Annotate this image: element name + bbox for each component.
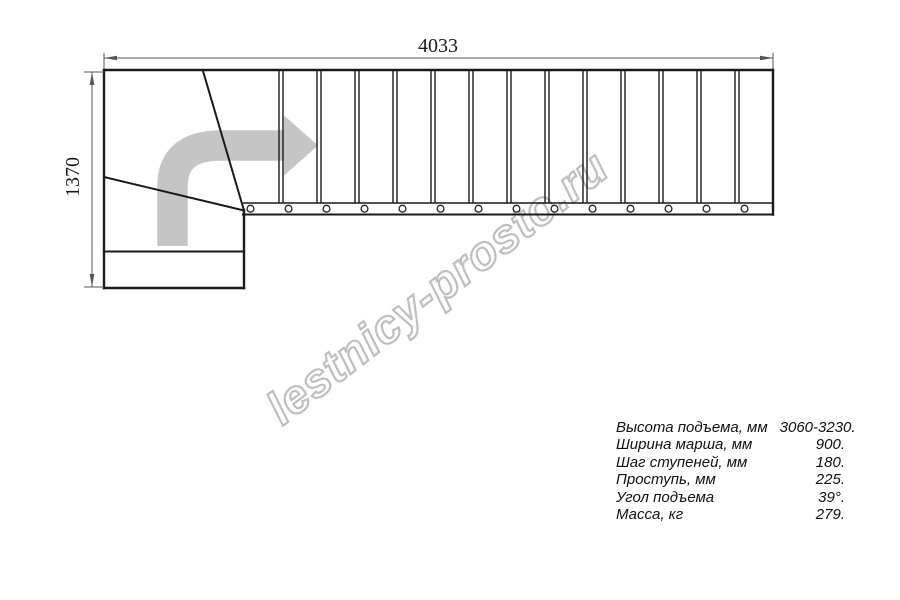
height-dim-arrow-bottom <box>90 274 95 287</box>
direction-arrow-head <box>284 116 318 176</box>
baluster-circle <box>589 205 596 212</box>
spec-label: Шаг ступеней, мм <box>616 454 747 471</box>
baluster-circle <box>513 205 520 212</box>
baluster-circle <box>285 205 292 212</box>
baluster-circle <box>361 205 368 212</box>
spec-label: Ширина марша, мм <box>616 436 752 453</box>
width-dim-arrow-right <box>760 56 773 61</box>
baluster-circle <box>665 205 672 212</box>
watermark-text: lestnicy-prosto.ru <box>256 140 617 435</box>
baluster-circle <box>703 205 710 212</box>
spec-label: Проступь, мм <box>616 471 716 488</box>
baluster-circle <box>475 205 482 212</box>
spec-label: Масса, кг <box>616 506 683 523</box>
height-dim-arrow-top <box>90 72 95 85</box>
direction-arrow-shaft <box>173 146 285 247</box>
baluster-circle <box>399 205 406 212</box>
direction-arrow <box>173 116 319 247</box>
dimension-width: 4033 <box>104 35 773 69</box>
width-dim-arrow-left <box>104 56 117 61</box>
spec-row: Ширина марша, мм 900. <box>616 436 845 453</box>
baluster-circle <box>437 205 444 212</box>
spec-value: 39°. <box>806 489 845 506</box>
spec-row: Проступь, мм 225. <box>616 471 845 488</box>
spec-value: 279. <box>804 506 845 523</box>
spec-label: Угол подъема <box>616 489 714 506</box>
height-dimension-label: 1370 <box>62 157 84 197</box>
width-dimension-label: 4033 <box>418 35 458 57</box>
baluster-circle <box>741 205 748 212</box>
tread-division-lines <box>279 71 739 203</box>
spec-value: 900. <box>804 436 845 453</box>
spec-row: Угол подъема 39°. <box>616 489 845 506</box>
dimension-height: 1370 <box>62 72 104 287</box>
spec-table: Высота подъема, мм 3060-3230. Ширина мар… <box>616 419 845 523</box>
baluster-circle <box>551 205 558 212</box>
spec-value: 3060-3230. <box>768 419 856 436</box>
spec-row: Масса, кг 279. <box>616 506 845 523</box>
baluster-circle <box>627 205 634 212</box>
spec-row: Высота подъема, мм 3060-3230. <box>616 419 845 436</box>
spec-value: 225. <box>804 471 845 488</box>
spec-value: 180. <box>804 454 845 471</box>
spec-label: Высота подъема, мм <box>616 419 768 436</box>
spec-row: Шаг ступеней, мм 180. <box>616 454 845 471</box>
baluster-circle <box>323 205 330 212</box>
baluster-circle <box>247 205 254 212</box>
